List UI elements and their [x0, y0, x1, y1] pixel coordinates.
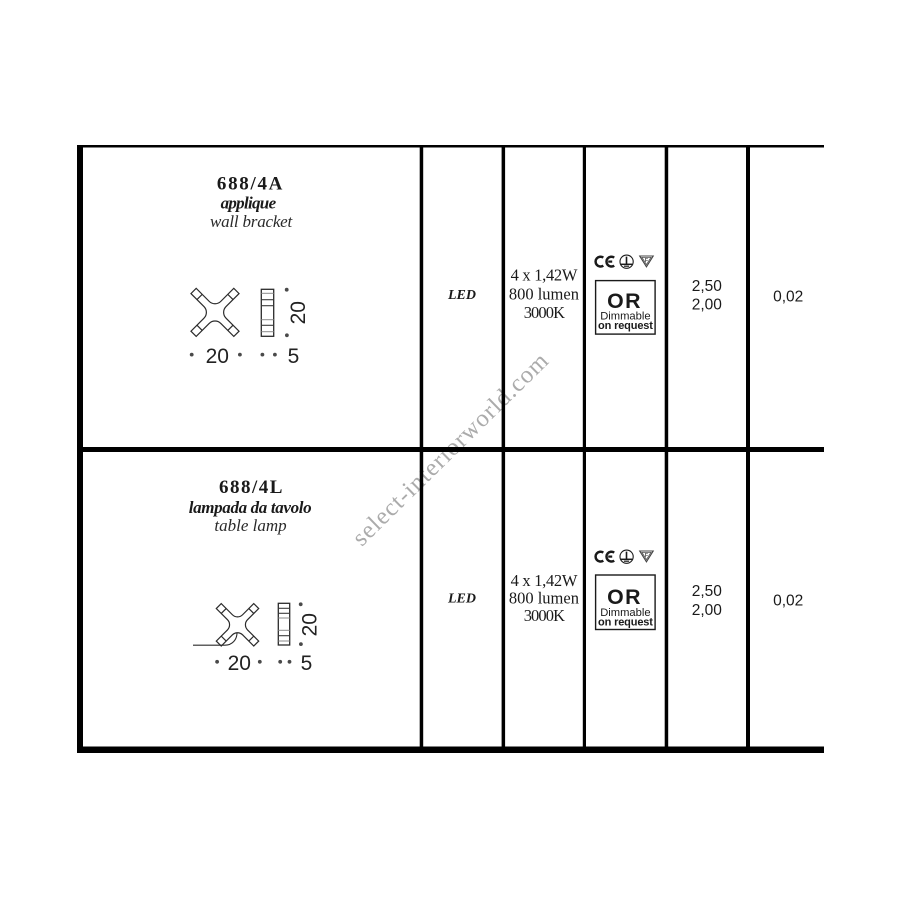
svg-text:20: 20: [287, 301, 310, 324]
svg-text:LED: LED: [447, 591, 476, 606]
svg-text:800 lumen: 800 lumen: [509, 588, 579, 607]
svg-text:LED: LED: [447, 288, 476, 303]
svg-text:20: 20: [228, 652, 251, 675]
svg-text:800 lumen: 800 lumen: [509, 284, 579, 303]
svg-text:table lamp: table lamp: [214, 516, 286, 535]
svg-text:0,02: 0,02: [773, 593, 803, 610]
svg-text:applique: applique: [221, 194, 277, 213]
svg-text:4 x 1,42W: 4 x 1,42W: [511, 266, 578, 285]
svg-text:0,02: 0,02: [773, 288, 803, 305]
svg-text:wall bracket: wall bracket: [210, 212, 294, 231]
svg-text:lampada da tavolo: lampada da tavolo: [189, 498, 312, 517]
svg-text:2,00: 2,00: [692, 297, 723, 314]
svg-text:on request: on request: [598, 617, 653, 629]
svg-text:5: 5: [288, 345, 300, 368]
svg-text:OR: OR: [607, 585, 642, 609]
svg-text:5: 5: [301, 652, 313, 675]
svg-text:2,50: 2,50: [692, 278, 723, 295]
svg-text:20: 20: [206, 345, 229, 368]
svg-text:2,50: 2,50: [692, 583, 723, 600]
svg-text:3000K: 3000K: [524, 606, 565, 625]
svg-text:2,00: 2,00: [692, 602, 723, 619]
svg-text:20: 20: [299, 613, 322, 636]
svg-text:OR: OR: [607, 289, 642, 313]
svg-text:688/4A: 688/4A: [217, 174, 284, 195]
svg-text:on request: on request: [598, 320, 653, 332]
svg-text:3000K: 3000K: [524, 303, 565, 322]
svg-text:688/4L: 688/4L: [219, 477, 284, 498]
svg-text:4 x 1,42W: 4 x 1,42W: [511, 571, 578, 590]
